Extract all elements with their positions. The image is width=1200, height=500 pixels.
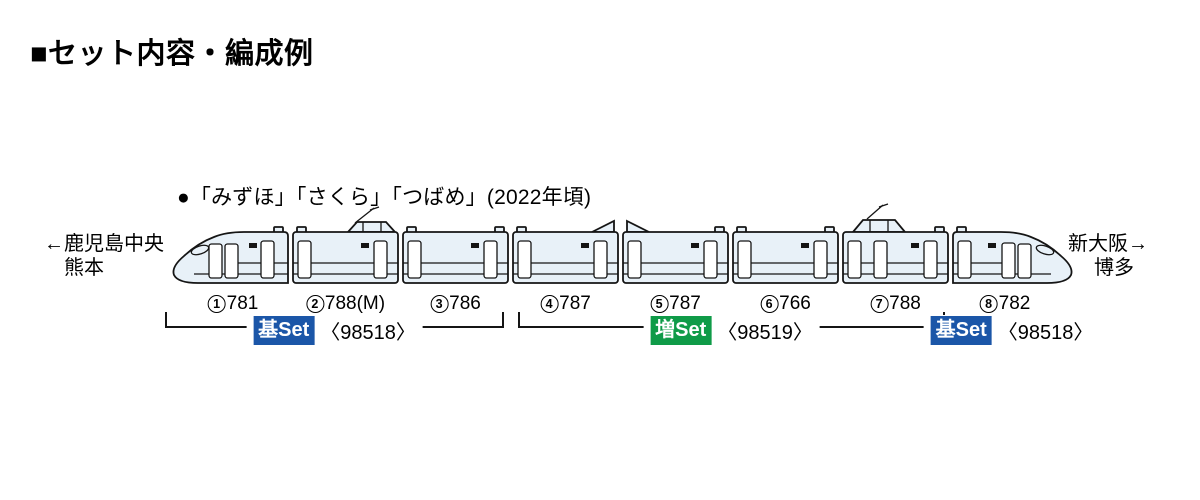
car-number-circle: 7 bbox=[870, 295, 888, 313]
car-3-drawing bbox=[403, 227, 508, 283]
car-label-8: 8782 bbox=[980, 293, 1031, 315]
train-side-view bbox=[0, 0, 1200, 500]
set-type-badge: 基Set bbox=[253, 316, 314, 345]
car-number-circle: 5 bbox=[650, 295, 668, 313]
set-type-badge: 増Set bbox=[650, 316, 711, 345]
car-number-circle: 4 bbox=[540, 295, 558, 313]
car-series: 782 bbox=[999, 293, 1031, 315]
set-label-3: 基Set〈98518〉 bbox=[924, 315, 1101, 345]
car-1-drawing bbox=[173, 227, 288, 283]
formation-diagram-page: ■セット内容・編成例 ●「みずほ」「さくら」「つばめ」(2022年頃) ←鹿児島… bbox=[0, 0, 1200, 500]
car-2-drawing bbox=[293, 207, 398, 283]
car-number-circle: 1 bbox=[208, 295, 226, 313]
set-label-1: 基Set〈98518〉 bbox=[246, 315, 423, 345]
car-number-circle: 2 bbox=[306, 295, 324, 313]
set-label-2: 増Set〈98519〉 bbox=[643, 315, 820, 345]
set-type-badge: 基Set bbox=[931, 316, 992, 345]
car-5-drawing bbox=[623, 221, 728, 283]
set-item-code: 〈98519〉 bbox=[717, 316, 813, 345]
car-4-drawing bbox=[513, 221, 618, 283]
set-item-code: 〈98518〉 bbox=[998, 316, 1094, 345]
car-number-circle: 3 bbox=[430, 295, 448, 313]
car-8-drawing bbox=[953, 227, 1072, 283]
car-number-circle: 6 bbox=[760, 295, 778, 313]
set-item-code: 〈98518〉 bbox=[320, 316, 416, 345]
car-7-drawing bbox=[843, 204, 948, 283]
car-6-drawing bbox=[733, 227, 838, 283]
car-number-circle: 8 bbox=[980, 295, 998, 313]
